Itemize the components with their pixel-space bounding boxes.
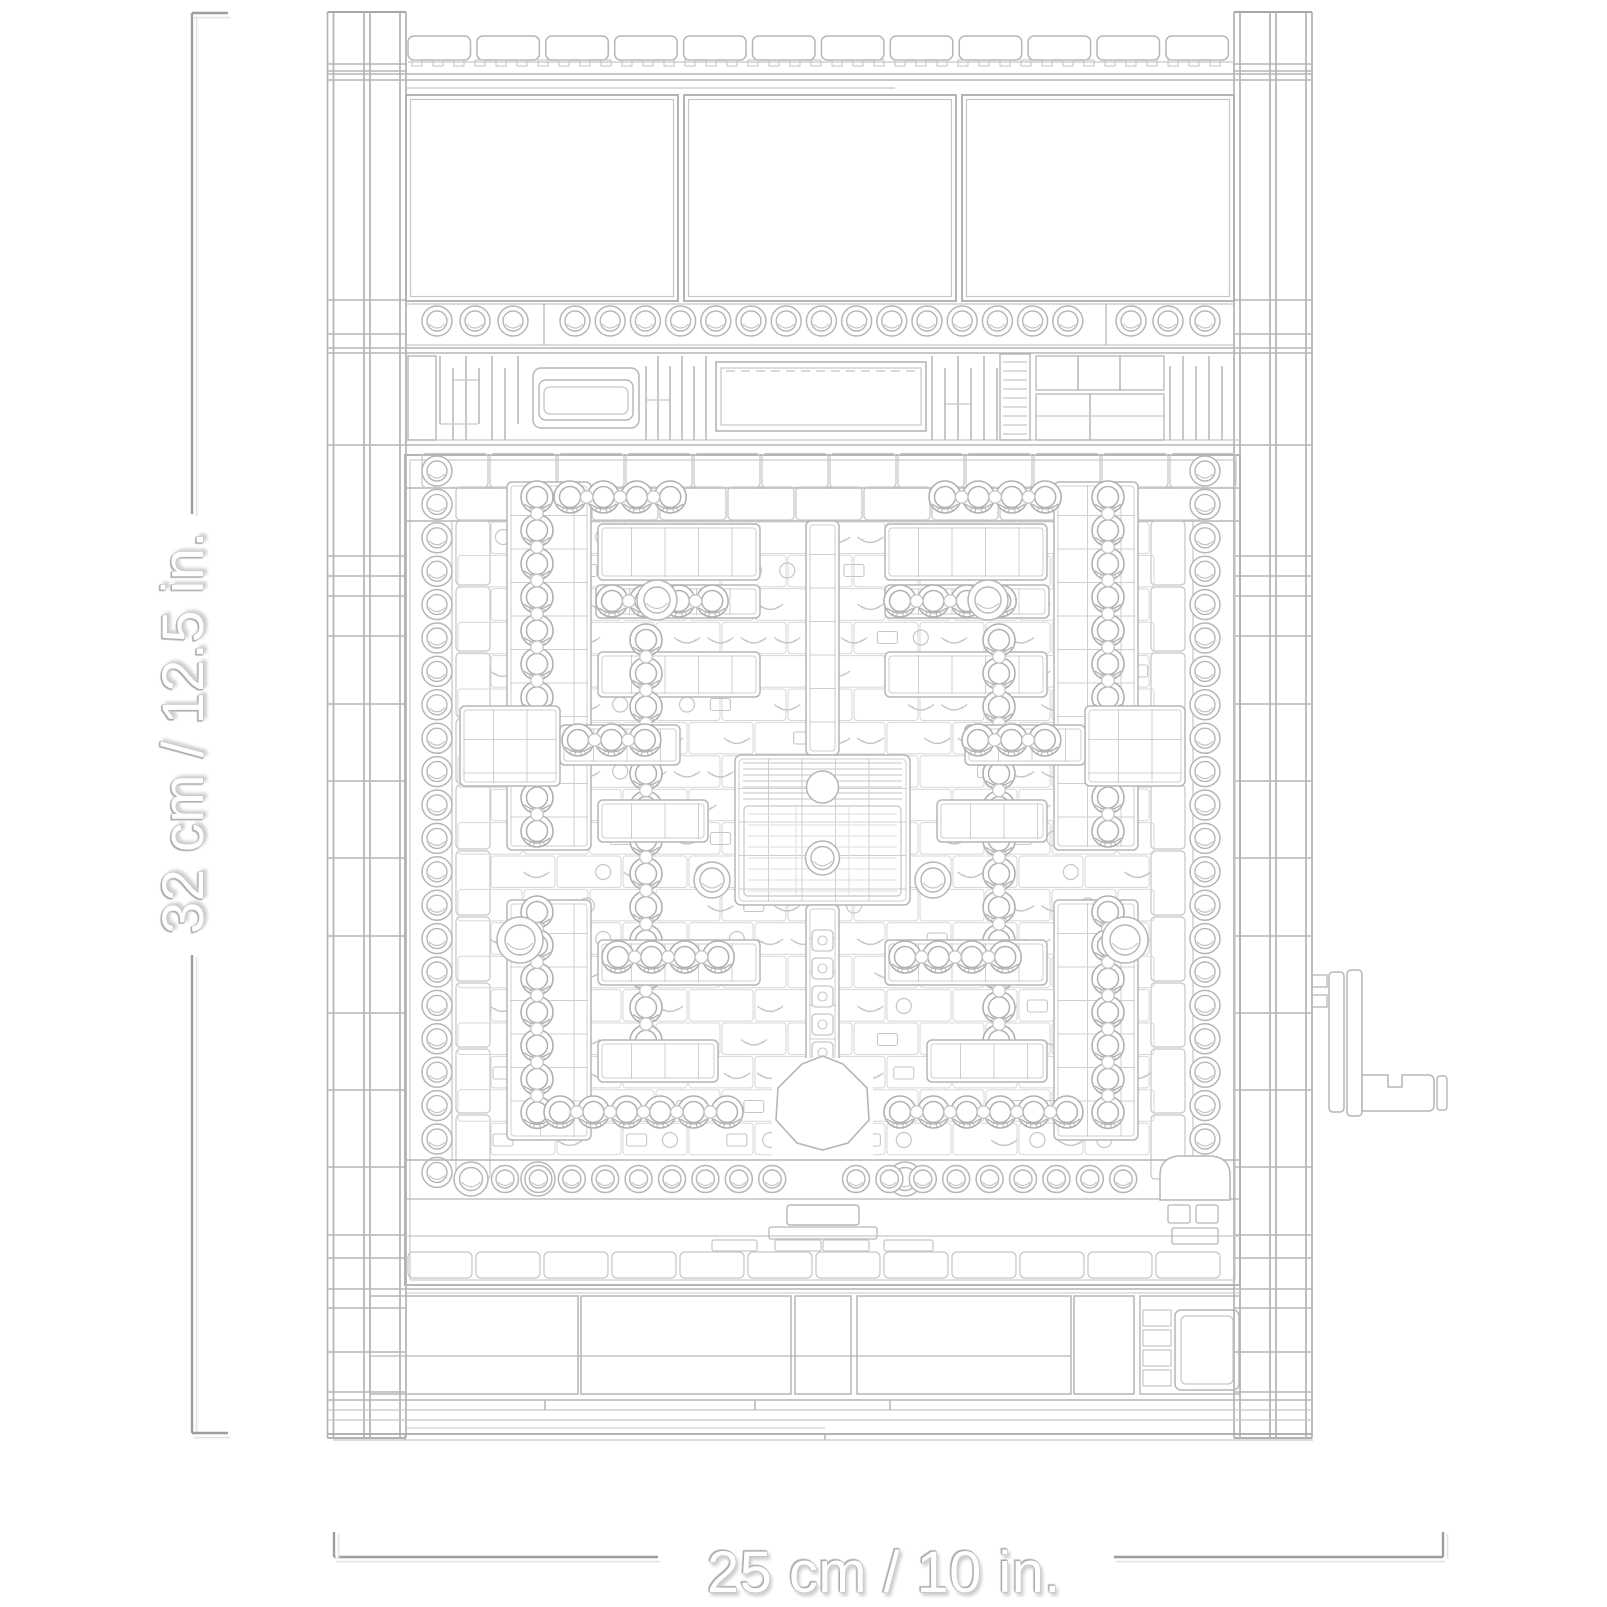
svg-text:32 cm / 12.5 in.: 32 cm / 12.5 in. (151, 531, 216, 934)
svg-text:25 cm / 10 in.: 25 cm / 10 in. (707, 1540, 1061, 1605)
